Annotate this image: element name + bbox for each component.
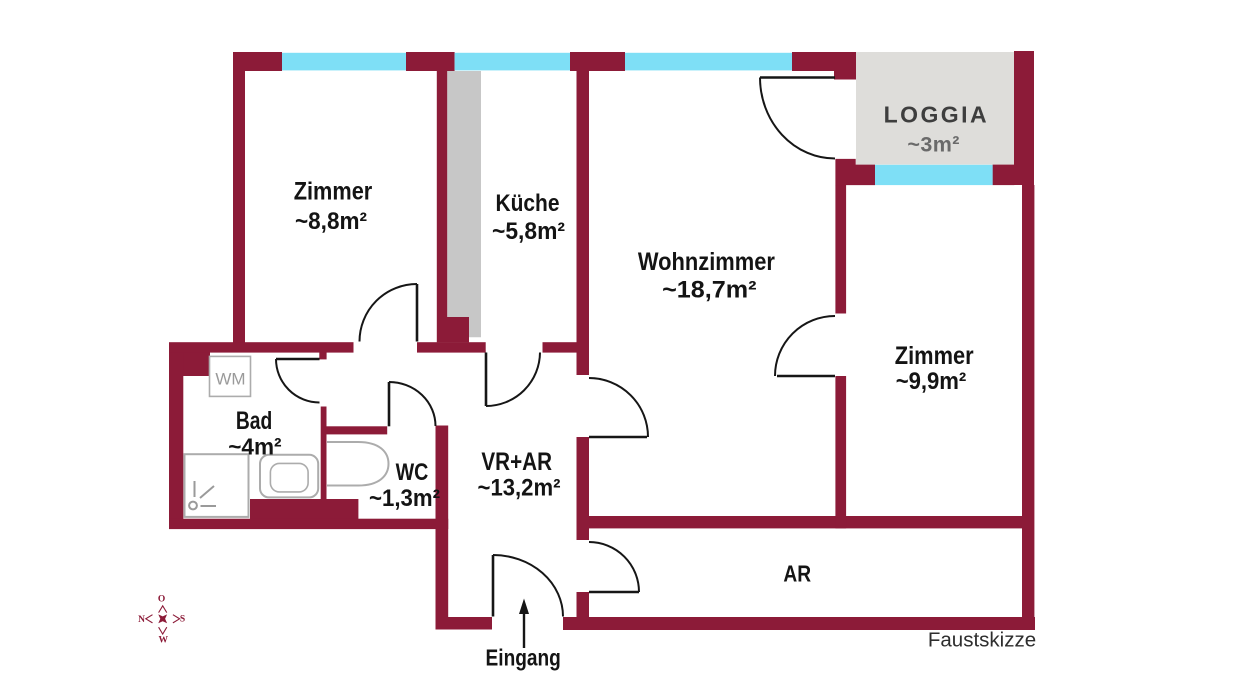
- svg-text:~13,2m²: ~13,2m²: [478, 475, 561, 502]
- svg-text:~4m²: ~4m²: [228, 433, 282, 459]
- svg-text:Wohnzimmer: Wohnzimmer: [638, 248, 775, 276]
- svg-text:Eingang: Eingang: [486, 645, 561, 671]
- svg-text:Küche: Küche: [496, 190, 560, 217]
- svg-text:W: W: [158, 635, 168, 645]
- svg-text:S: S: [180, 614, 185, 624]
- svg-text:Bad: Bad: [236, 407, 272, 435]
- svg-text:~3m²: ~3m²: [907, 133, 959, 157]
- svg-text:~9,9m²: ~9,9m²: [896, 368, 967, 395]
- svg-text:N: N: [138, 615, 145, 625]
- svg-text:~5,8m²: ~5,8m²: [492, 218, 565, 245]
- svg-text:~18,7m²: ~18,7m²: [662, 277, 756, 304]
- svg-text:WC: WC: [396, 459, 429, 486]
- svg-text:~1,3m²: ~1,3m²: [369, 485, 440, 512]
- svg-text:AR: AR: [783, 560, 811, 586]
- svg-text:O: O: [158, 595, 165, 605]
- svg-text:VR+AR: VR+AR: [481, 448, 552, 476]
- svg-text:Zimmer: Zimmer: [895, 342, 974, 370]
- svg-text:WM: WM: [215, 370, 245, 389]
- svg-text:~8,8m²: ~8,8m²: [295, 208, 367, 235]
- svg-text:Faustskizze: Faustskizze: [928, 629, 1036, 652]
- svg-text:Zimmer: Zimmer: [294, 178, 373, 206]
